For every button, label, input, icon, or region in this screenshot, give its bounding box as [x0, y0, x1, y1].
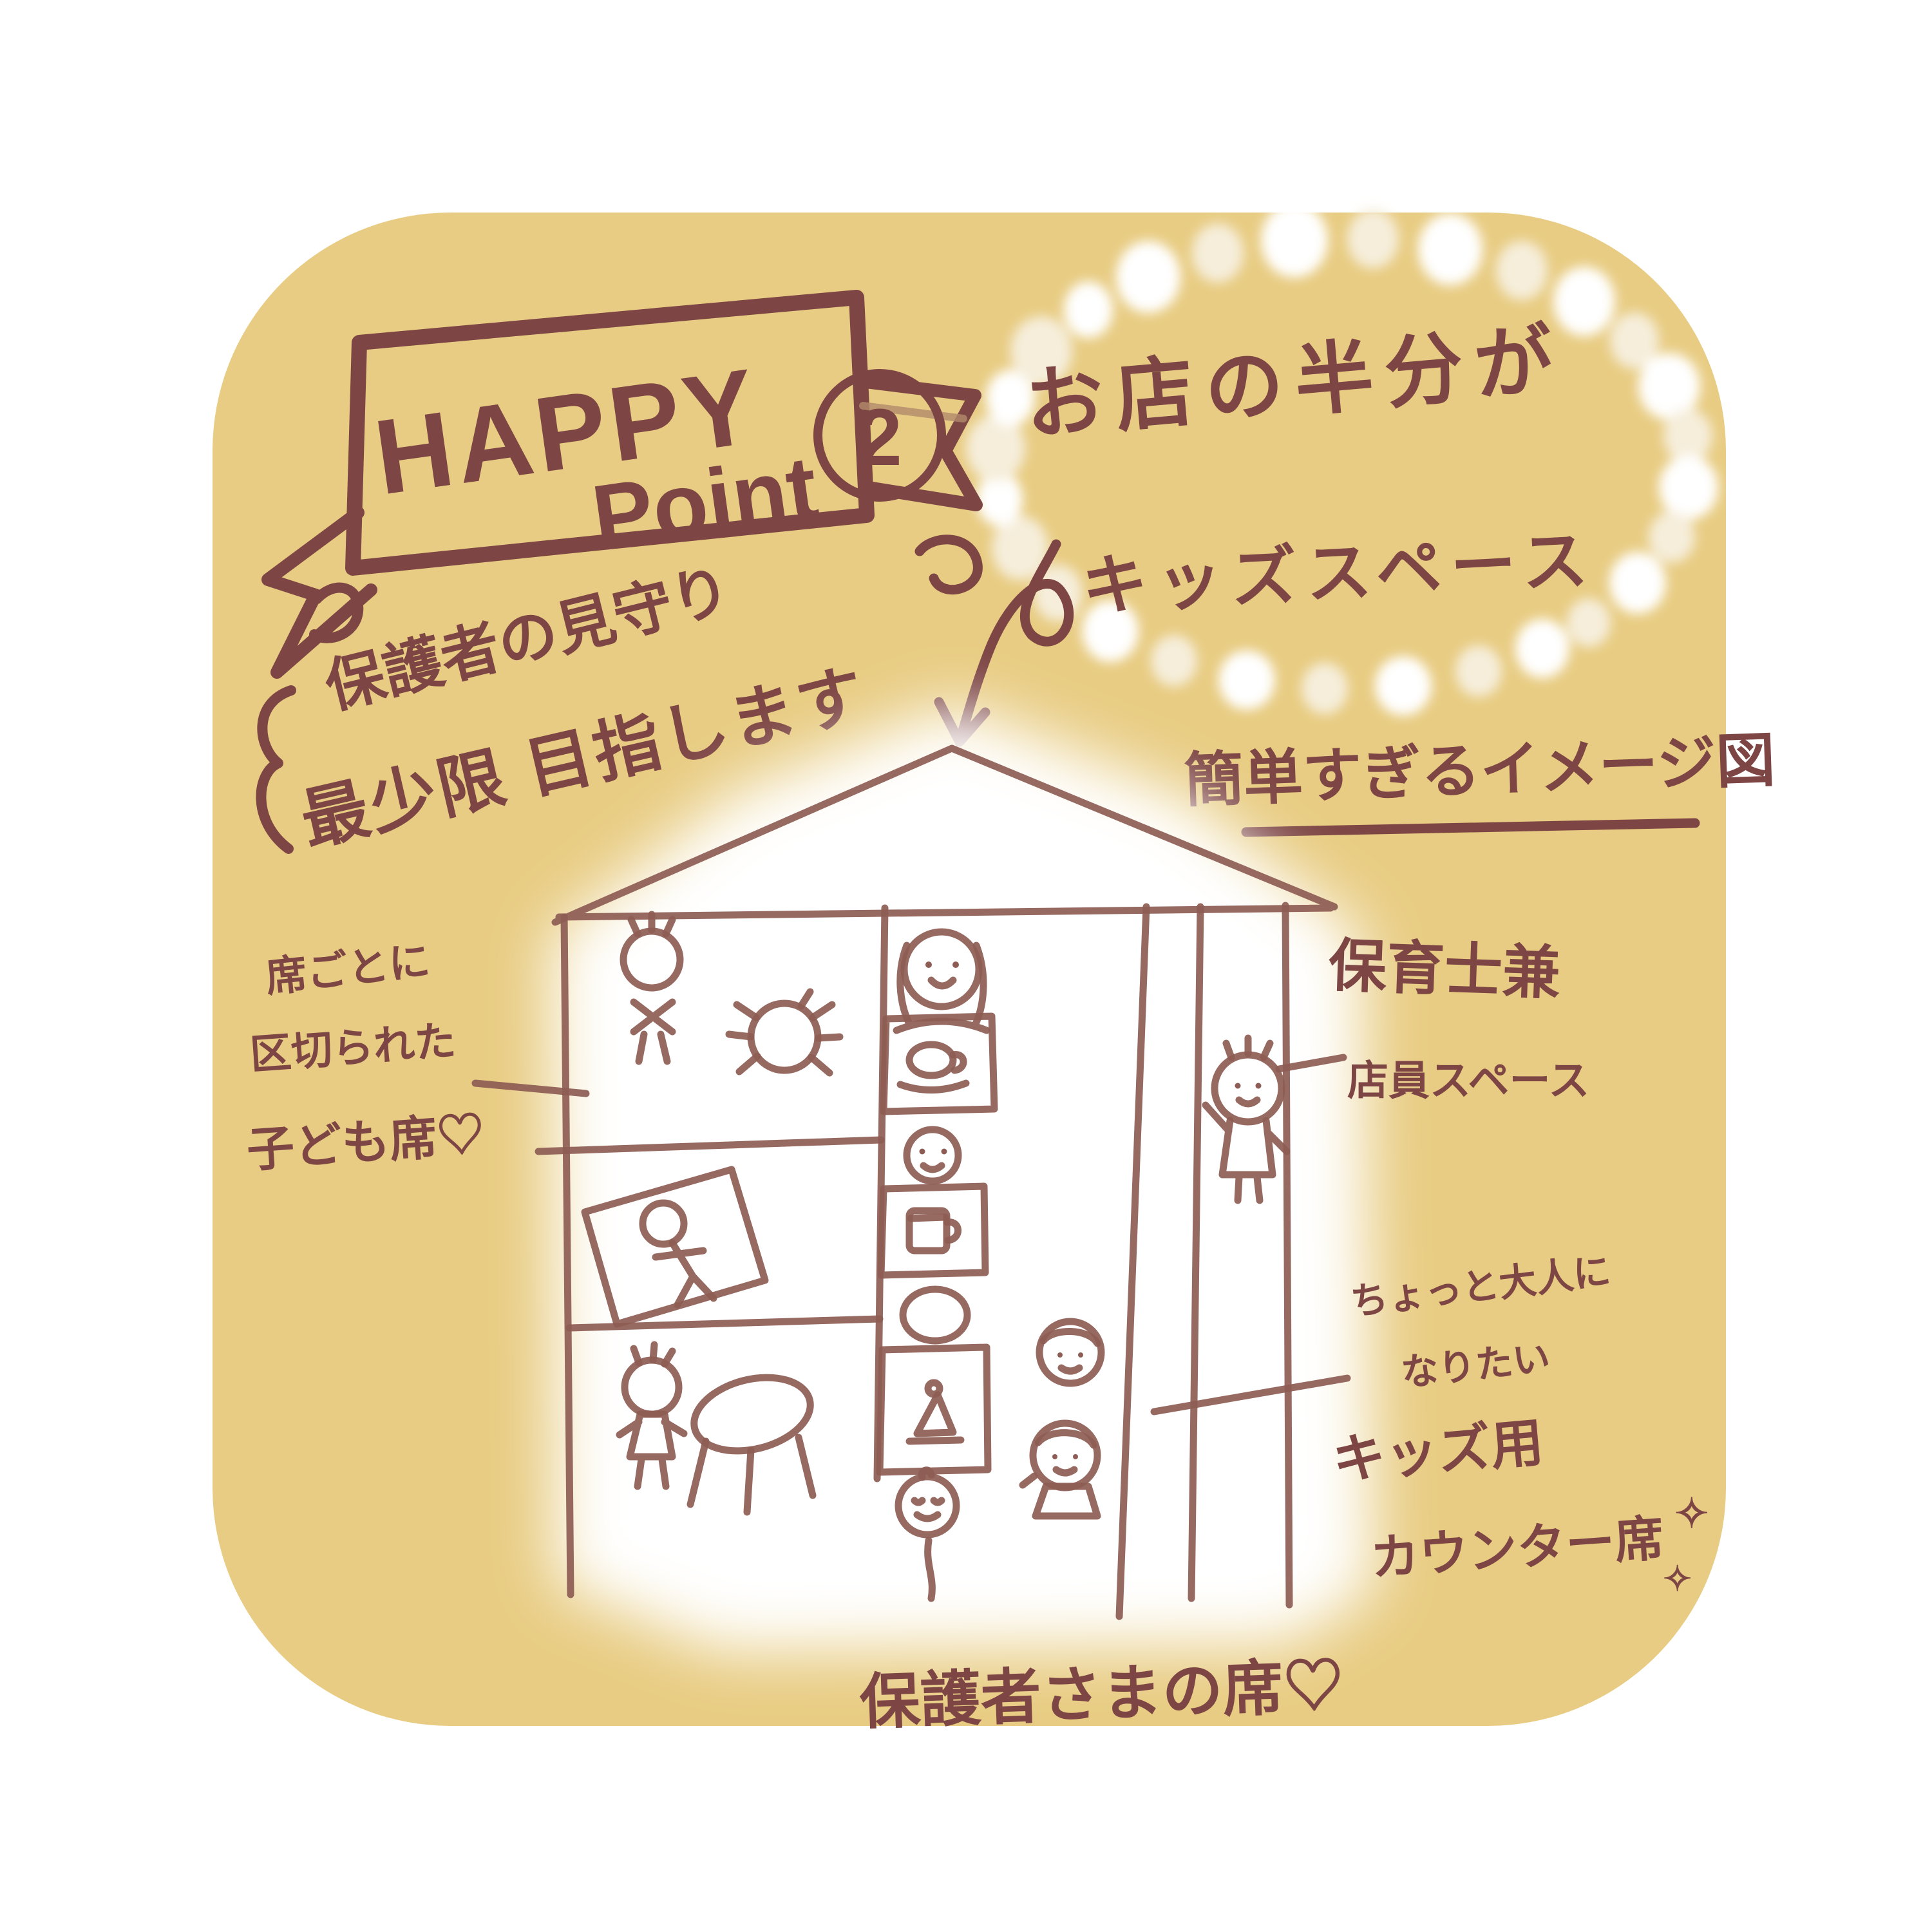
ring-dot	[1064, 281, 1113, 338]
ring-dot	[1455, 645, 1502, 697]
ring-dot	[1192, 223, 1244, 283]
ring-dot	[1553, 267, 1615, 336]
ring-dot	[1302, 663, 1348, 714]
banner-badge-number: 2	[857, 393, 902, 482]
ring-dot	[1663, 409, 1712, 463]
sparkle-icon: ✧	[1674, 1490, 1709, 1537]
ring-dot	[1151, 635, 1197, 687]
ring-dot	[1515, 619, 1569, 678]
ring-dot	[1375, 656, 1432, 715]
ring-dot	[1496, 241, 1548, 300]
ring-dot	[1567, 598, 1611, 647]
ring-dot	[1347, 209, 1399, 269]
ring-dot	[1418, 213, 1482, 285]
ring-dot	[1649, 511, 1695, 563]
ring-dot	[1218, 650, 1275, 710]
sparkle-icon: ✧	[1663, 1560, 1692, 1598]
staff-line2: 店員スペース	[1347, 1057, 1589, 1104]
illustration-canvas: HAPPY Point 2 お店の半分が キッズスペース 保護者の見守り 最少限…	[0, 0, 1932, 1932]
ring-dot	[1609, 552, 1666, 614]
right-wall	[1285, 905, 1289, 1605]
ring-dot	[1261, 203, 1328, 278]
ring-dot	[1659, 455, 1718, 520]
ring-dot	[1116, 241, 1180, 313]
staff-line1: 保育士兼	[1327, 934, 1561, 1007]
